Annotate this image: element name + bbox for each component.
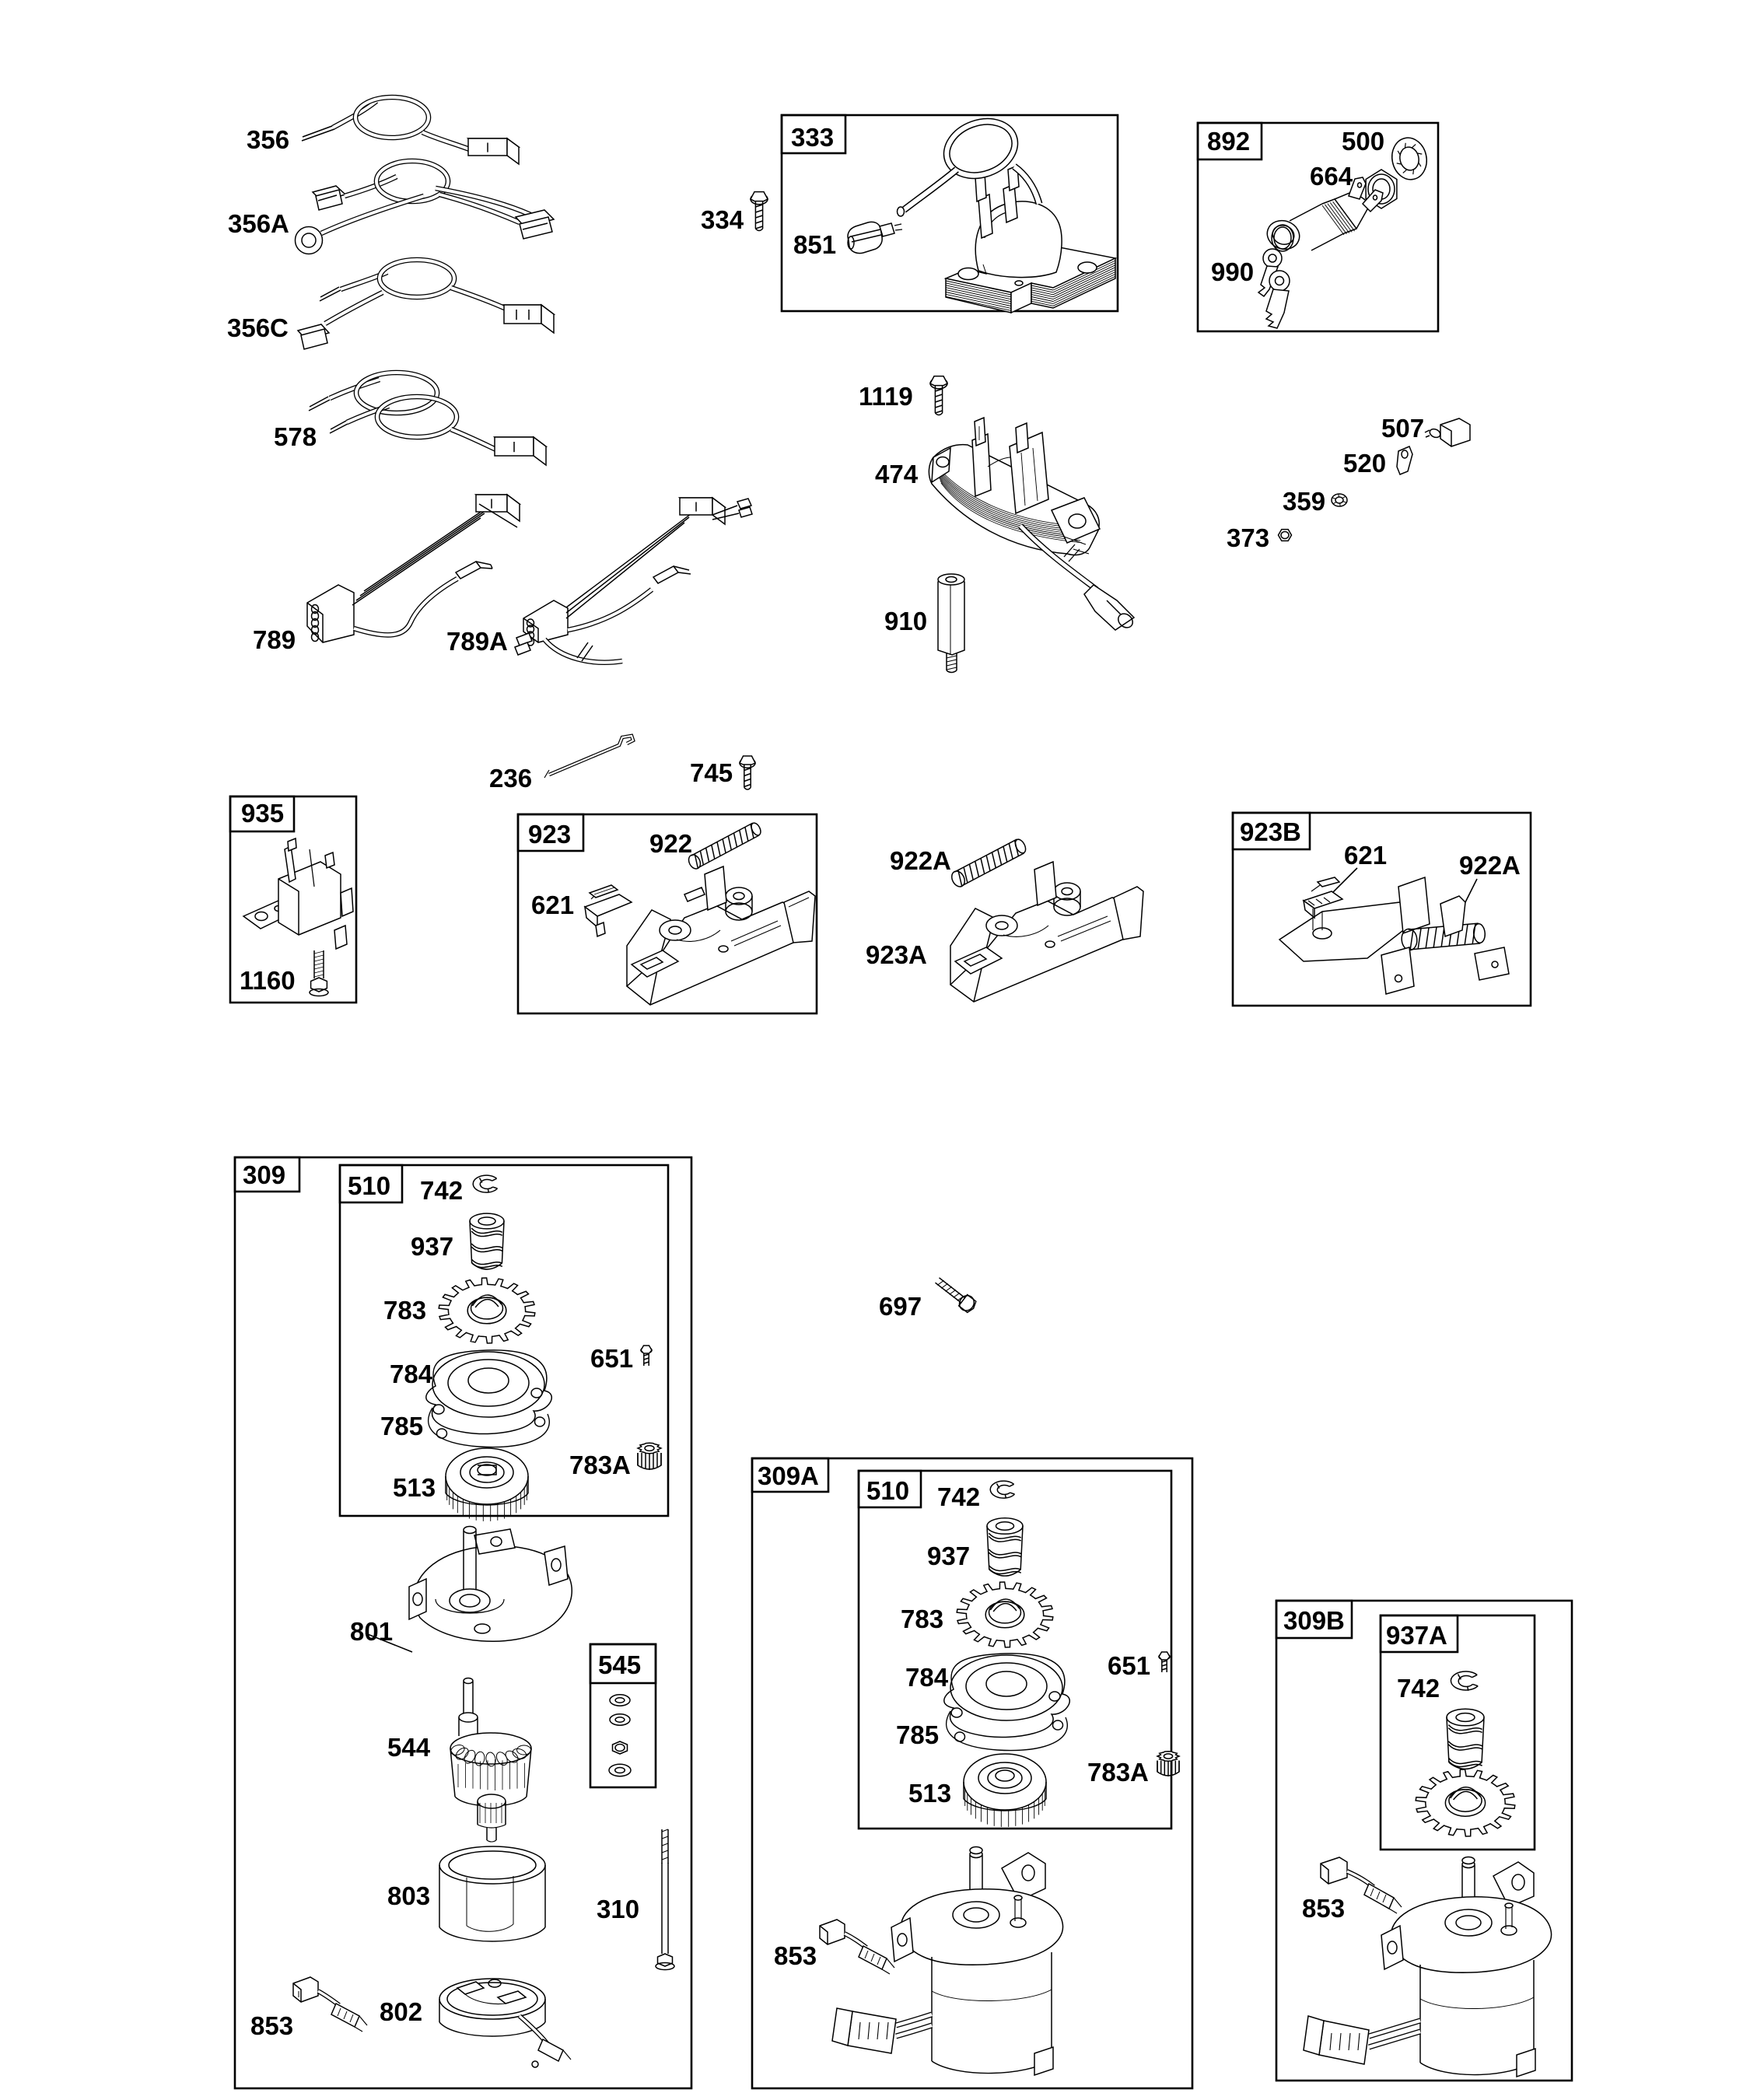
svg-text:923: 923 [528, 820, 571, 849]
svg-text:513: 513 [393, 1473, 436, 1502]
svg-text:510: 510 [866, 1476, 909, 1505]
svg-text:359: 359 [1283, 487, 1325, 516]
svg-text:520: 520 [1343, 449, 1386, 478]
svg-text:922: 922 [649, 829, 692, 858]
svg-text:922A: 922A [890, 846, 951, 875]
svg-text:742: 742 [1397, 1674, 1440, 1703]
svg-text:745: 745 [690, 758, 733, 787]
svg-text:309B: 309B [1283, 1606, 1345, 1635]
svg-text:333: 333 [791, 123, 834, 152]
svg-text:621: 621 [1344, 841, 1387, 870]
svg-text:783: 783 [383, 1296, 426, 1325]
svg-text:356A: 356A [228, 209, 289, 238]
svg-text:507: 507 [1381, 414, 1424, 443]
svg-text:851: 851 [793, 230, 836, 259]
svg-text:789A: 789A [446, 627, 508, 656]
svg-text:784: 784 [390, 1360, 433, 1388]
svg-text:356: 356 [247, 125, 289, 154]
svg-text:935: 935 [241, 799, 284, 828]
svg-text:853: 853 [250, 2011, 293, 2040]
svg-text:621: 621 [531, 891, 574, 919]
svg-text:785: 785 [896, 1720, 939, 1749]
svg-text:853: 853 [774, 1941, 817, 1970]
svg-text:923A: 923A [866, 940, 927, 969]
svg-text:802: 802 [380, 1997, 422, 2026]
svg-text:510: 510 [348, 1171, 390, 1200]
svg-text:500: 500 [1342, 127, 1384, 156]
svg-text:923B: 923B [1240, 817, 1301, 846]
svg-text:309: 309 [243, 1160, 285, 1189]
svg-text:513: 513 [908, 1779, 951, 1808]
svg-text:783A: 783A [1087, 1758, 1149, 1787]
svg-text:937A: 937A [1386, 1621, 1447, 1650]
svg-text:373: 373 [1227, 523, 1269, 552]
svg-text:785: 785 [380, 1412, 423, 1440]
svg-text:990: 990 [1211, 257, 1254, 286]
svg-text:910: 910 [884, 607, 927, 635]
svg-text:742: 742 [420, 1176, 463, 1205]
svg-text:651: 651 [590, 1344, 633, 1373]
svg-text:803: 803 [387, 1881, 430, 1910]
svg-text:334: 334 [701, 205, 744, 234]
svg-text:783: 783 [901, 1605, 943, 1633]
svg-text:544: 544 [387, 1733, 431, 1762]
svg-text:474: 474 [875, 460, 919, 488]
svg-text:651: 651 [1108, 1651, 1150, 1680]
svg-text:892: 892 [1207, 127, 1250, 156]
svg-text:922A: 922A [1459, 851, 1521, 880]
svg-text:545: 545 [598, 1650, 641, 1679]
svg-text:937: 937 [927, 1542, 970, 1570]
svg-text:309A: 309A [758, 1461, 819, 1490]
svg-text:697: 697 [879, 1292, 922, 1321]
svg-text:1119: 1119 [859, 382, 913, 411]
svg-text:853: 853 [1302, 1894, 1345, 1923]
svg-text:310: 310 [597, 1895, 639, 1923]
svg-text:664: 664 [1310, 162, 1353, 191]
svg-text:578: 578 [274, 422, 317, 451]
svg-text:783A: 783A [569, 1451, 631, 1479]
svg-text:1160: 1160 [240, 966, 296, 995]
svg-text:236: 236 [489, 764, 532, 793]
svg-text:742: 742 [937, 1482, 980, 1511]
svg-text:937: 937 [411, 1232, 453, 1261]
svg-text:784: 784 [905, 1663, 949, 1692]
svg-text:789: 789 [253, 625, 296, 654]
svg-text:356C: 356C [227, 313, 289, 342]
